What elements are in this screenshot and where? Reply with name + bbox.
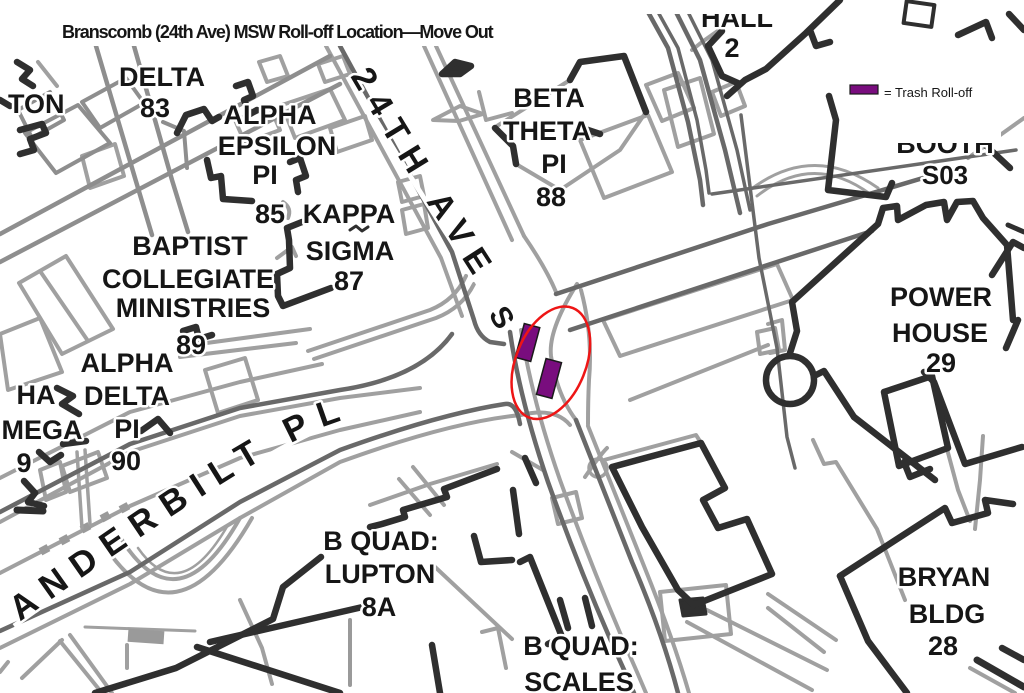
svg-text:EPSILON: EPSILON	[218, 131, 337, 161]
svg-text:= Trash Roll-off: = Trash Roll-off	[884, 85, 973, 100]
svg-text:S03: S03	[922, 160, 968, 190]
svg-text:TON: TON	[8, 89, 65, 119]
svg-text:B QUAD:: B QUAD:	[323, 526, 439, 556]
svg-text:ALPHA: ALPHA	[81, 348, 174, 378]
svg-text:28: 28	[928, 631, 958, 661]
svg-text:BETA: BETA	[513, 83, 585, 113]
svg-text:DELTA: DELTA	[84, 381, 170, 411]
svg-text:9: 9	[16, 448, 31, 478]
svg-text:BLDG: BLDG	[909, 599, 986, 629]
svg-text:85: 85	[255, 199, 285, 229]
svg-text:LUPTON: LUPTON	[325, 559, 436, 589]
svg-text:MINISTRIES: MINISTRIES	[116, 293, 271, 323]
svg-text:THETA: THETA	[503, 116, 591, 146]
svg-text:HOUSE: HOUSE	[892, 318, 988, 348]
svg-text:KAPPA: KAPPA	[303, 199, 396, 229]
svg-text:ALPHA: ALPHA	[224, 100, 317, 130]
svg-text:BRYAN: BRYAN	[898, 562, 991, 592]
svg-text:DELTA: DELTA	[119, 62, 205, 92]
svg-text:87: 87	[334, 266, 364, 296]
svg-text:PI: PI	[252, 160, 278, 190]
svg-text:SCALES: SCALES	[524, 667, 634, 693]
svg-text:BAPTIST: BAPTIST	[132, 231, 248, 261]
svg-text:COLLEGIATE: COLLEGIATE	[102, 264, 274, 294]
svg-text:POWER: POWER	[890, 282, 992, 312]
svg-text:88: 88	[536, 182, 566, 212]
svg-text:83: 83	[140, 93, 170, 123]
svg-text:PI: PI	[541, 149, 567, 179]
svg-text:SIGMA: SIGMA	[306, 236, 395, 266]
svg-text:MEGA: MEGA	[2, 415, 83, 445]
svg-text:90: 90	[111, 446, 141, 476]
svg-text:Branscomb (24th Ave) MSW Roll-: Branscomb (24th Ave) MSW Roll-off Locati…	[62, 22, 494, 42]
svg-text:PI: PI	[114, 414, 140, 444]
svg-text:B QUAD:: B QUAD:	[523, 631, 639, 661]
svg-text:2: 2	[724, 33, 739, 63]
svg-text:29: 29	[926, 348, 956, 378]
svg-text:HA: HA	[17, 380, 56, 410]
svg-text:89: 89	[176, 330, 206, 360]
svg-text:8A: 8A	[362, 592, 397, 622]
